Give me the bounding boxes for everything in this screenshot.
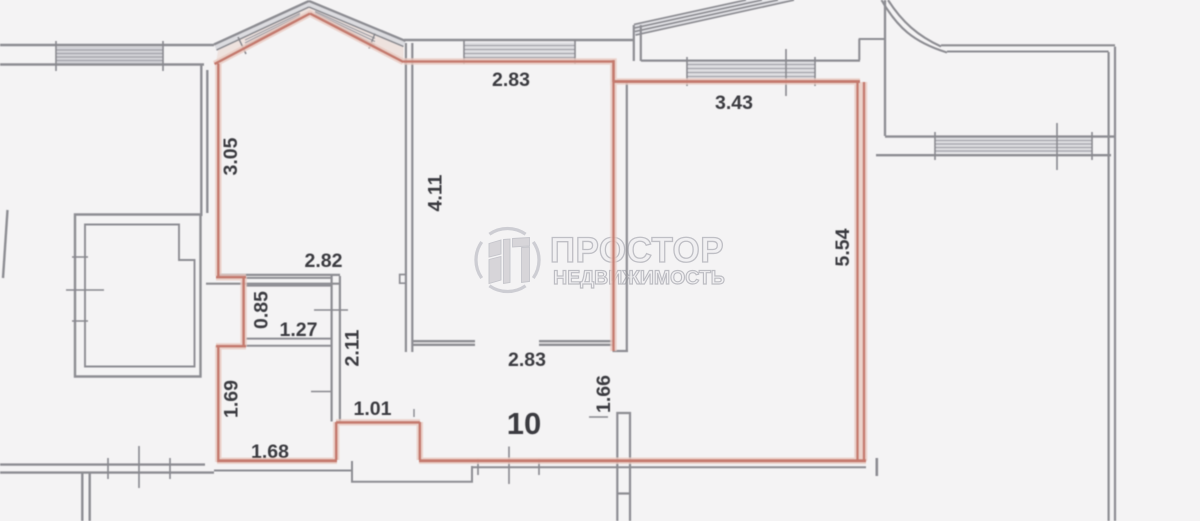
svg-text:1.27: 1.27	[280, 319, 318, 341]
svg-text:1.66: 1.66	[593, 375, 615, 413]
svg-text:1.69: 1.69	[221, 380, 243, 418]
svg-text:1.68: 1.68	[251, 441, 289, 463]
svg-text:2.11: 2.11	[342, 329, 364, 366]
svg-text:НЕДВИЖИМОСТЬ: НЕДВИЖИМОСТЬ	[553, 267, 725, 289]
svg-text:5.54: 5.54	[832, 228, 854, 266]
svg-text:2.83: 2.83	[508, 349, 546, 371]
svg-text:2.82: 2.82	[305, 250, 343, 272]
svg-text:3.05: 3.05	[220, 137, 242, 175]
svg-text:2.83: 2.83	[492, 69, 530, 91]
svg-text:1.01: 1.01	[354, 398, 392, 420]
svg-text:10: 10	[507, 406, 541, 441]
svg-text:4.11: 4.11	[425, 174, 447, 211]
svg-text:3.43: 3.43	[715, 92, 753, 114]
svg-text:ПРОСТОР: ПРОСТОР	[550, 231, 724, 270]
svg-text:0.85: 0.85	[251, 291, 273, 329]
